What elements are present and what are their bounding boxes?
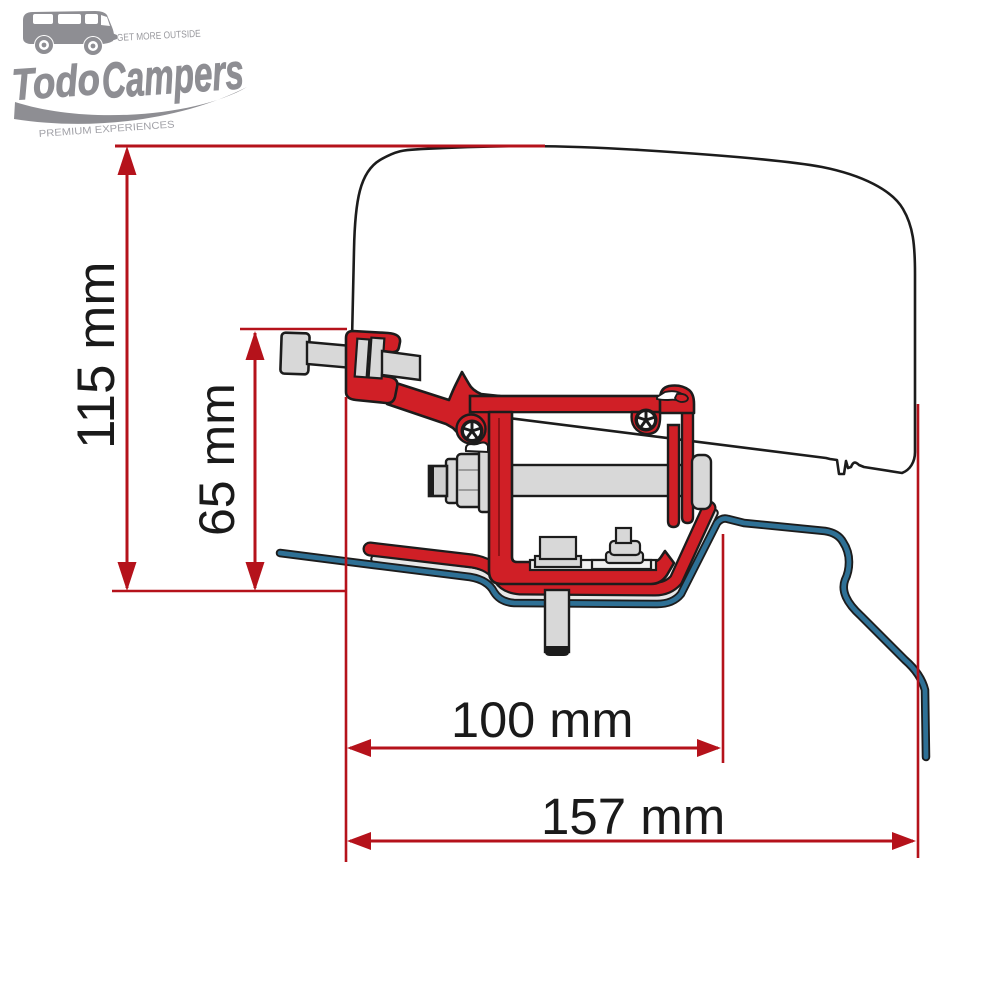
svg-text:Todo: Todo bbox=[10, 55, 101, 110]
svg-text:157 mm: 157 mm bbox=[541, 788, 725, 845]
svg-text:100 mm: 100 mm bbox=[451, 691, 633, 748]
svg-text:115 mm: 115 mm bbox=[67, 261, 126, 449]
svg-text:65 mm: 65 mm bbox=[189, 383, 245, 536]
svg-text:Campers: Campers bbox=[100, 43, 246, 109]
